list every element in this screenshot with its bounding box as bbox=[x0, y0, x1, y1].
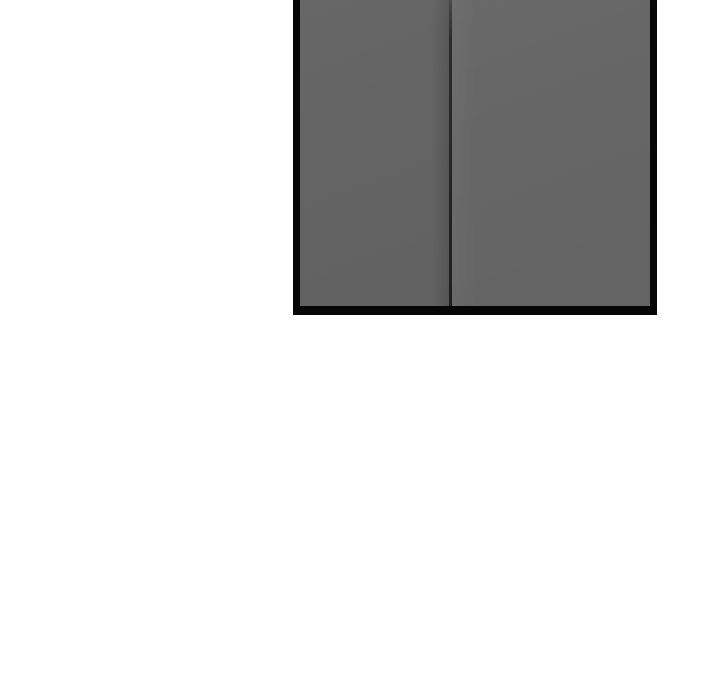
left-door-panel[interactable] bbox=[300, 0, 449, 306]
right-door-panel[interactable] bbox=[452, 0, 650, 306]
door-frame bbox=[293, 0, 657, 315]
door-panels bbox=[300, 0, 650, 306]
